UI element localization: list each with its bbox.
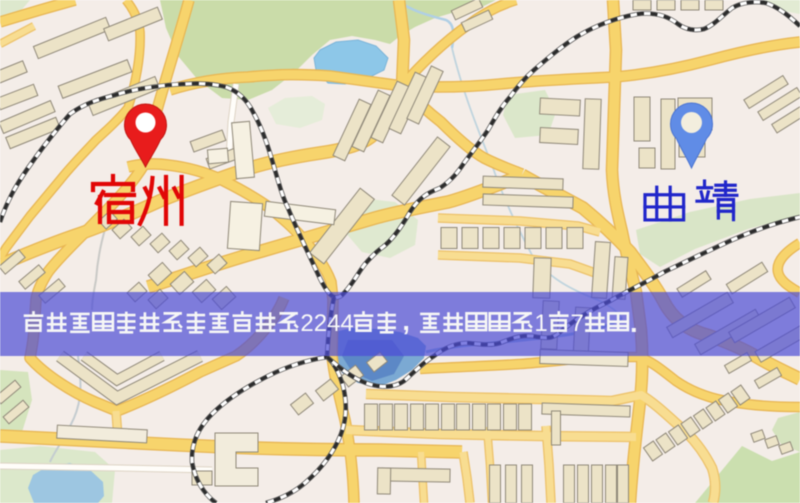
- svg-text:1: 1: [534, 310, 547, 337]
- svg-text:2244: 2244: [300, 310, 353, 337]
- svg-text:,: ,: [402, 306, 410, 336]
- svg-text:7: 7: [571, 310, 584, 337]
